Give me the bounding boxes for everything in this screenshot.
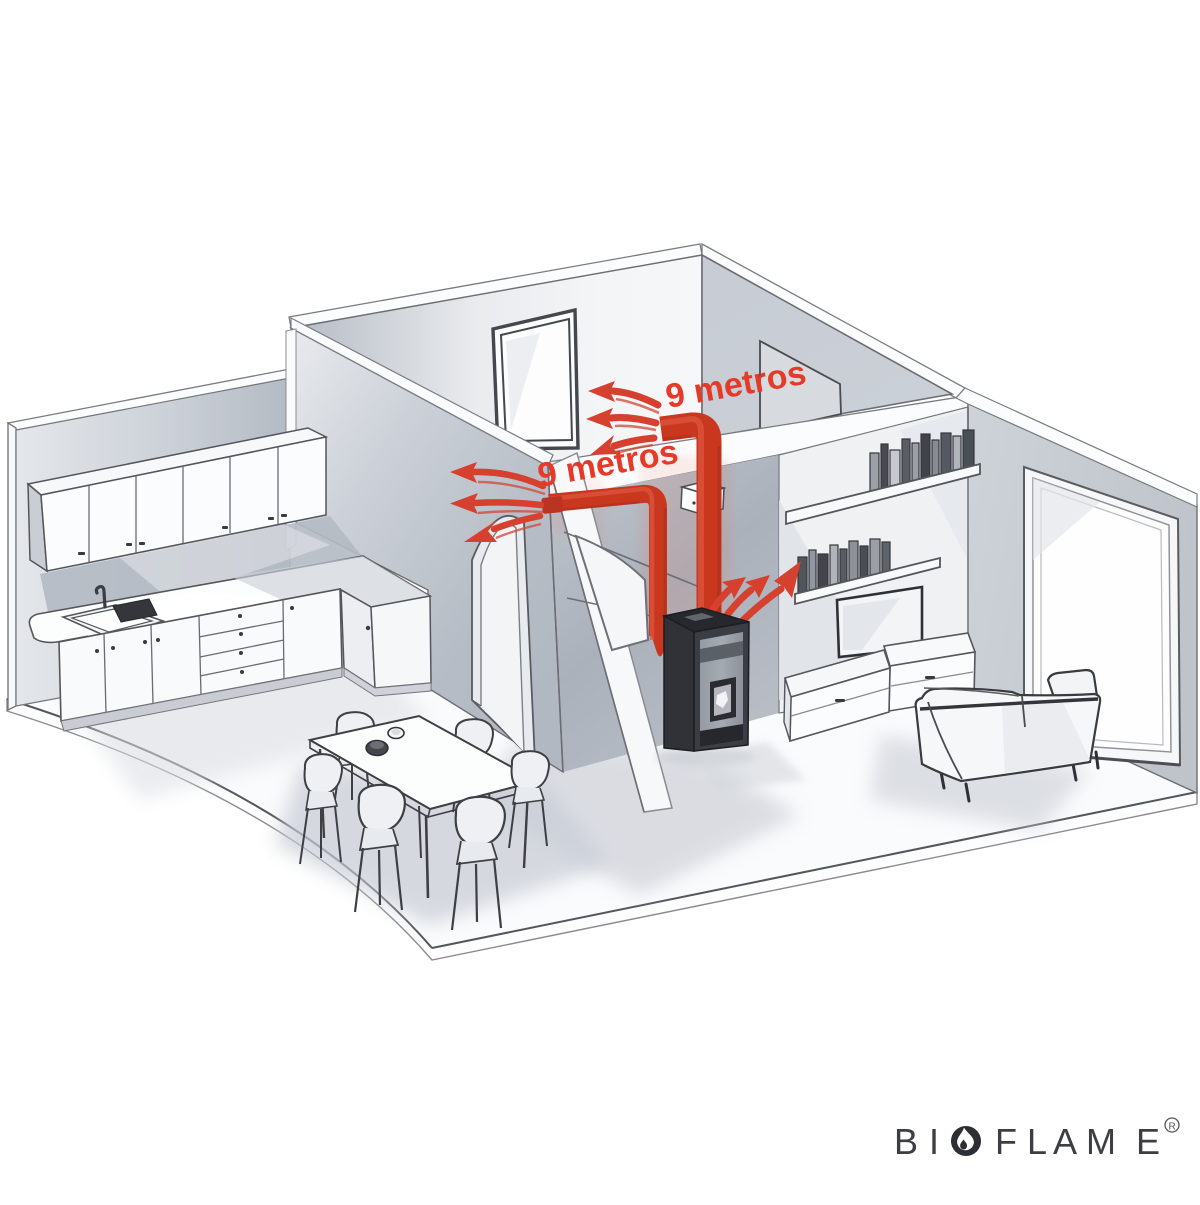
svg-text:L: L	[1027, 1121, 1047, 1162]
svg-text:R: R	[1169, 1122, 1176, 1133]
svg-text:I: I	[929, 1121, 939, 1162]
svg-text:M: M	[1086, 1121, 1116, 1162]
svg-text:A: A	[1053, 1121, 1077, 1162]
svg-text:E: E	[1136, 1121, 1160, 1162]
svg-text:F: F	[995, 1121, 1017, 1162]
svg-text:B: B	[894, 1121, 918, 1162]
